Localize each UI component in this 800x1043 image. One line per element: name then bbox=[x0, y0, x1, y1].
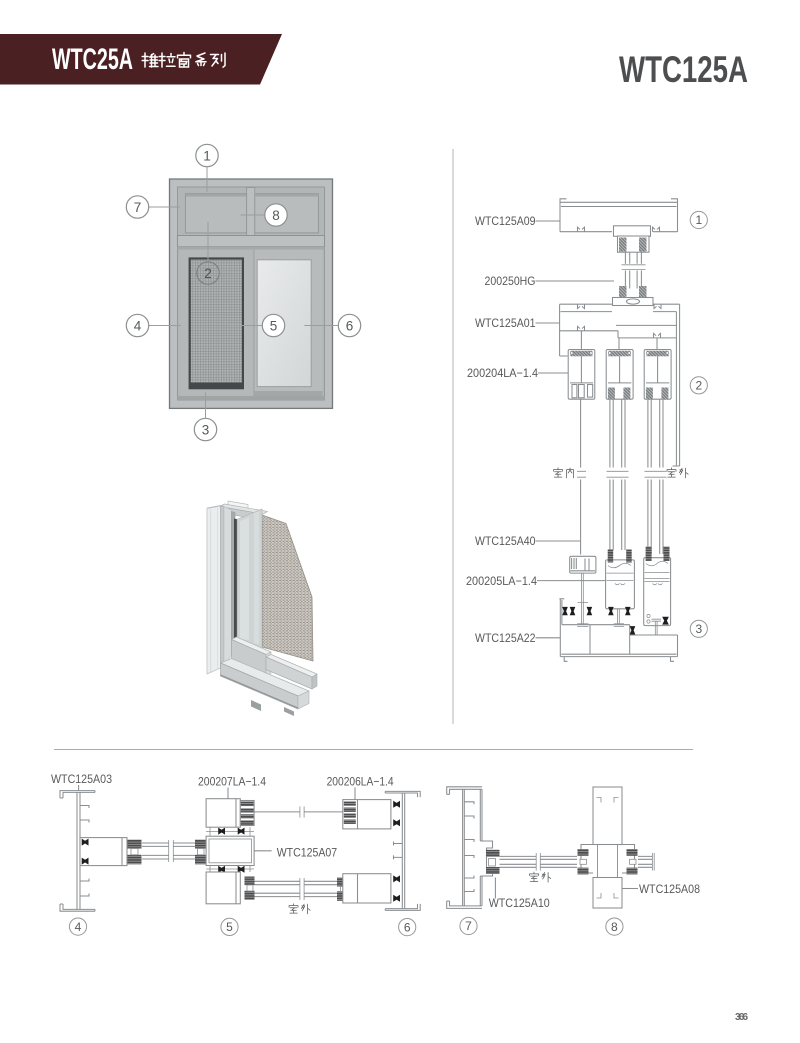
svg-text:4: 4 bbox=[75, 920, 82, 934]
svg-text:200204LA−1.4: 200204LA−1.4 bbox=[467, 366, 538, 380]
svg-text:3: 3 bbox=[202, 422, 210, 437]
svg-text:1: 1 bbox=[203, 148, 211, 163]
svg-text:4: 4 bbox=[134, 318, 142, 333]
svg-text:8: 8 bbox=[611, 920, 618, 934]
svg-text:WTC125A: WTC125A bbox=[619, 49, 748, 90]
svg-text:6: 6 bbox=[404, 920, 411, 934]
svg-text:WTC125A08: WTC125A08 bbox=[639, 882, 700, 896]
svg-text:8: 8 bbox=[272, 208, 280, 223]
svg-text:2: 2 bbox=[695, 379, 702, 393]
svg-text:WTC125A07: WTC125A07 bbox=[277, 845, 338, 859]
svg-text:WTC25A: WTC25A bbox=[52, 43, 133, 76]
svg-text:WTC125A10: WTC125A10 bbox=[489, 896, 550, 910]
svg-text:200205LA−1.4: 200205LA−1.4 bbox=[466, 574, 537, 588]
svg-text:WTC125A40: WTC125A40 bbox=[475, 534, 536, 548]
svg-text:WTC125A09: WTC125A09 bbox=[475, 214, 536, 228]
svg-text:1: 1 bbox=[695, 213, 702, 227]
svg-text:WTC125A01: WTC125A01 bbox=[475, 316, 536, 330]
svg-text:2: 2 bbox=[204, 266, 212, 281]
svg-text:200250HG: 200250HG bbox=[485, 274, 536, 288]
svg-text:WTC125A03: WTC125A03 bbox=[51, 772, 112, 786]
svg-text:5: 5 bbox=[226, 920, 233, 934]
svg-text:7: 7 bbox=[134, 200, 142, 215]
svg-text:6: 6 bbox=[346, 318, 354, 333]
svg-text:200206LA−1.4: 200206LA−1.4 bbox=[327, 775, 394, 789]
svg-text:WTC125A22: WTC125A22 bbox=[475, 631, 536, 645]
svg-text:200207LA−1.4: 200207LA−1.4 bbox=[198, 775, 266, 789]
svg-text:3: 3 bbox=[695, 622, 702, 636]
svg-text:7: 7 bbox=[465, 919, 472, 933]
svg-text:5: 5 bbox=[270, 318, 278, 333]
svg-text:366: 366 bbox=[735, 1012, 748, 1023]
